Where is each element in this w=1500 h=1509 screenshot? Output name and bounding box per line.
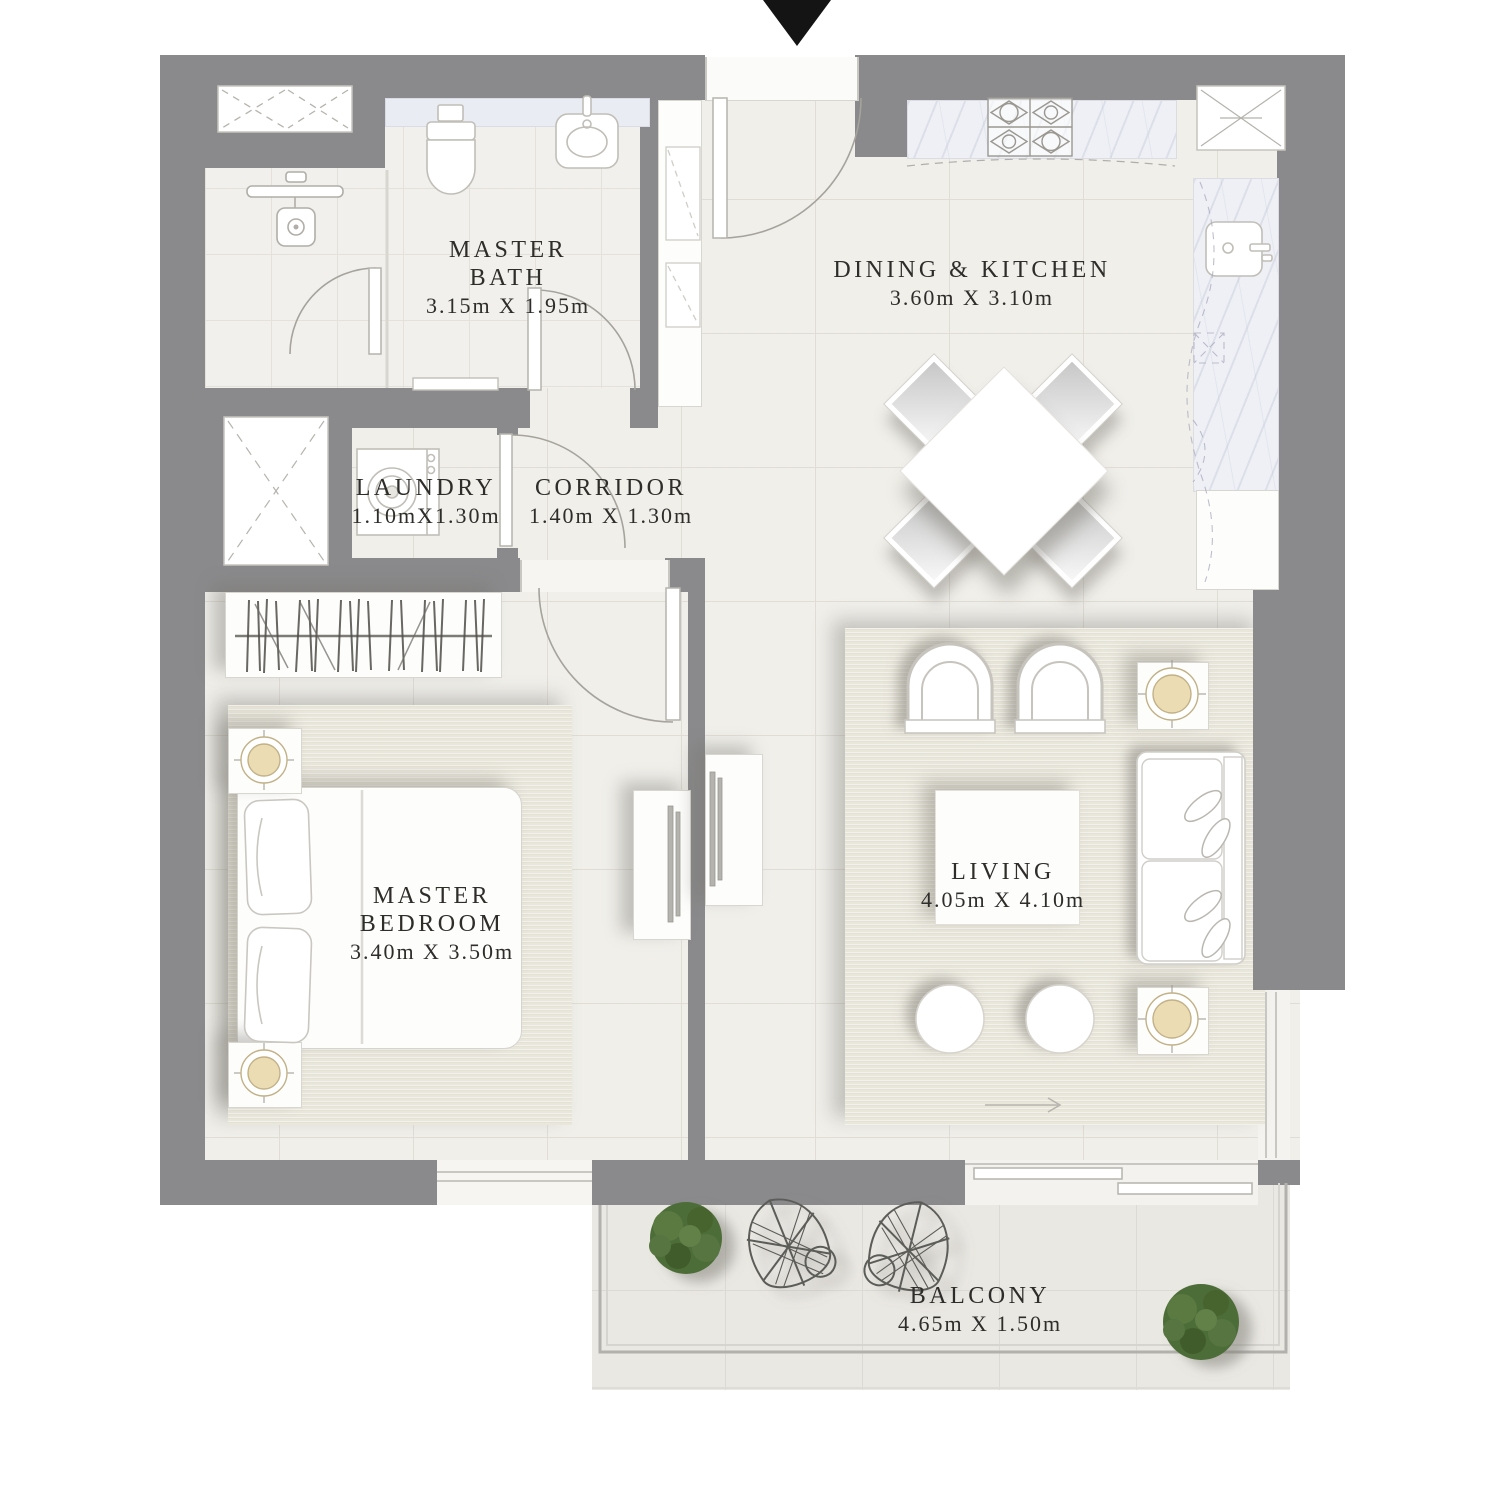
kitchen-counter-top: [907, 100, 1177, 159]
room-name: CORRIDOR: [529, 474, 693, 502]
room-name: MASTER: [350, 882, 514, 910]
room-dimensions: 3.15m X 1.95m: [426, 292, 590, 320]
room-dimensions: 4.05m X 4.10m: [921, 886, 1085, 914]
wall: [160, 55, 705, 100]
kitchen-counter-right: [1193, 178, 1279, 492]
bath-vanity-counter: [385, 98, 650, 127]
room-label-corridor: CORRIDOR 1.40m X 1.30m: [529, 474, 693, 530]
entrance-threshold: [705, 57, 859, 101]
wall: [497, 405, 518, 435]
room-name: BALCONY: [898, 1282, 1062, 1310]
bedroom-door-threshold: [520, 560, 670, 592]
room-name: LIVING: [921, 858, 1085, 886]
room-label-living: LIVING 4.05m X 4.10m: [921, 858, 1085, 914]
wall: [205, 100, 385, 168]
tv-console-bedroom: [633, 790, 691, 940]
room-label-balcony: BALCONY 4.65m X 1.50m: [898, 1282, 1062, 1338]
nightstand: [228, 728, 302, 794]
room-name: BEDROOM: [350, 910, 514, 938]
wall: [640, 100, 658, 408]
room-dimensions: 4.65m X 1.50m: [898, 1310, 1062, 1338]
side-table: [1137, 987, 1209, 1055]
wall: [855, 55, 1345, 100]
balcony-sliding-door: [965, 1160, 1258, 1205]
wall: [160, 55, 205, 1205]
nightstand: [228, 1042, 302, 1108]
room-dimensions: 1.40m X 1.30m: [529, 502, 693, 530]
wall: [205, 558, 520, 592]
wall: [592, 1160, 965, 1205]
wall: [160, 1160, 437, 1205]
room-label-master-bath: MASTER BATH 3.15m X 1.95m: [426, 236, 590, 320]
wall: [855, 100, 907, 157]
wall: [1258, 1160, 1300, 1185]
room-dimensions: 3.60m X 3.10m: [833, 284, 1110, 312]
room-name: LAUNDRY: [351, 474, 500, 502]
wall: [630, 388, 658, 428]
fridge: [1196, 490, 1279, 590]
room-label-master-bedroom: MASTER BEDROOM 3.40m X 3.50m: [350, 882, 514, 966]
entry-cabinet-column: [658, 100, 702, 407]
room-label-dining-kitchen: DINING & KITCHEN 3.60m X 3.10m: [833, 256, 1110, 312]
wall: [1253, 590, 1345, 990]
room-name: BATH: [426, 264, 590, 292]
wall: [205, 398, 352, 578]
entrance-arrow-icon: [763, 0, 831, 46]
room-dimensions: 1.10mX1.30m: [351, 502, 500, 530]
room-name: DINING & KITCHEN: [833, 256, 1110, 284]
wall: [1277, 100, 1345, 600]
floor-plan: MASTER BATH 3.15m X 1.95m DINING & KITCH…: [0, 0, 1500, 1509]
bedroom-window: [437, 1160, 592, 1205]
room-label-laundry: LAUNDRY 1.10mX1.30m: [351, 474, 500, 530]
wardrobe: [225, 592, 502, 678]
room-dimensions: 3.40m X 3.50m: [350, 938, 514, 966]
room-name: MASTER: [426, 236, 590, 264]
side-table: [1137, 662, 1209, 730]
tv-console-living: [705, 754, 763, 906]
